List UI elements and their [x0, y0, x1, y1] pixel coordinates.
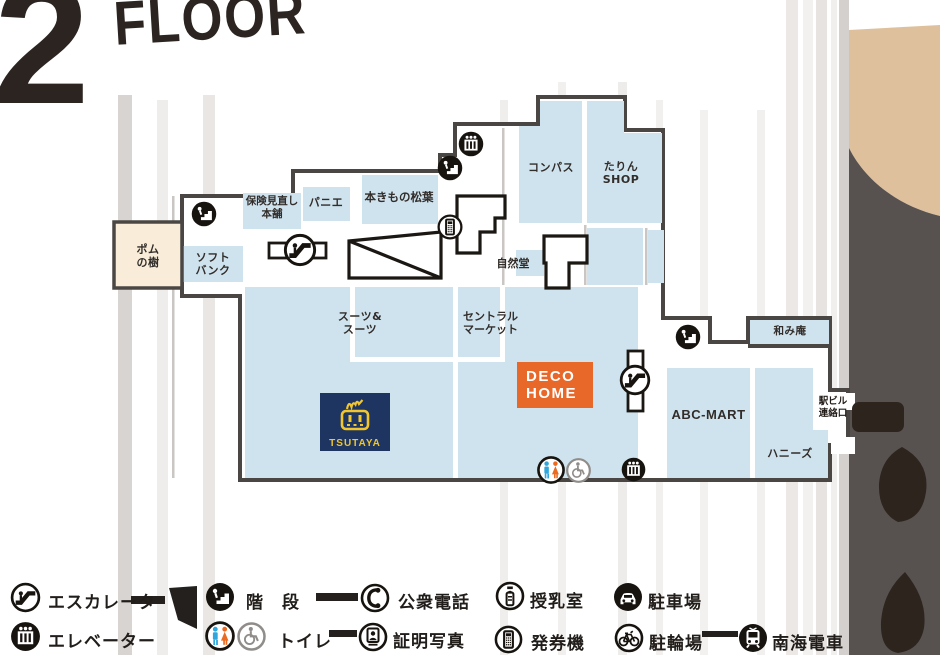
nagomian-underline: [748, 344, 831, 348]
toilet-icon: [536, 455, 566, 485]
legend-id-photo-label: 証明写真: [393, 627, 465, 652]
elevator-icon: [9, 620, 42, 653]
room-strip-east: [648, 230, 664, 283]
label-tarin: たりんSHOP: [592, 160, 650, 186]
ticket-machine-icon: [436, 213, 464, 241]
station-track-area: [849, 148, 940, 655]
stairs-icon: [436, 154, 464, 182]
floor-word: FLOOR: [112, 0, 308, 56]
tsutaya-face-icon: [320, 393, 390, 437]
id-photo-icon: [357, 621, 389, 653]
legend-nursing-room-label: 授乳室: [530, 587, 584, 612]
legend-stairs-label: 階 段: [246, 588, 300, 613]
elevator-icon: [620, 456, 647, 483]
escalator-icon: [282, 232, 318, 268]
room-abcmart: [667, 368, 750, 478]
legend-toilet-label: トイレ: [278, 627, 332, 652]
label-panier: パニエ: [302, 196, 350, 209]
stairs-icon: [204, 581, 236, 613]
label-compass: コンパス: [517, 161, 585, 174]
label-kimono: 本きもの松葉: [358, 191, 440, 205]
deco-home-logo: DECOHOME: [517, 362, 593, 408]
room-tarin-ext: [587, 228, 643, 285]
label-nagomian: 和み庵: [751, 325, 829, 338]
escalator-icon: [618, 363, 652, 397]
legend-ticket-machine-label: 発券機: [531, 629, 585, 654]
label-hoken: 保険見直し本舗: [242, 195, 302, 220]
label-softbank: ソフトバンク: [183, 251, 243, 277]
stairs-icon: [190, 200, 218, 228]
tsutaya-wordmark: TSUTAYA: [320, 438, 390, 449]
nankai-train-icon: [737, 622, 769, 654]
wheelchair-icon: [236, 621, 267, 652]
station-connector: [852, 402, 904, 432]
label-shizendo: 自然堂: [490, 257, 536, 270]
legend-nankai-train-label: 南海電車: [772, 629, 844, 654]
legend-parking-label: 駐車場: [648, 588, 702, 613]
label-central: セントラルマーケット: [448, 310, 533, 336]
legend-elevator-label: エレベーター: [48, 627, 156, 652]
label-suits: スーツ&スーツ: [315, 310, 405, 336]
legend-public-phone-label: 公衆電話: [398, 588, 470, 613]
label-abcmart: ABC-MART: [666, 407, 751, 423]
legend-bicycle-parking-label: 駐輪場: [649, 629, 703, 654]
label-pomunoki: ポムの樹: [118, 243, 178, 269]
ticket-machine-icon: [493, 624, 524, 655]
parking-icon: [612, 581, 644, 613]
floor-number: 2: [0, 0, 90, 130]
station-link-label: 駅ビル連絡口: [810, 396, 856, 420]
escalator-icon: [9, 581, 42, 614]
tsutaya-logo: TSUTAYA: [320, 393, 390, 451]
floor-map-page: 2 FLOOR ポムの樹 ソフトバンク 保険見直し本舗 パニエ 本きもの松葉 コ…: [0, 0, 940, 655]
bicycle-parking-icon: [613, 622, 645, 654]
stairs-icon: [674, 323, 702, 351]
legend-escalator-label: エスカレータ: [48, 588, 156, 613]
label-honeys: ハニーズ: [754, 447, 826, 460]
wheelchair-icon: [565, 457, 592, 484]
public-phone-icon: [359, 582, 391, 614]
toilet-icon: [204, 620, 236, 652]
nursing-room-icon: [494, 580, 526, 612]
